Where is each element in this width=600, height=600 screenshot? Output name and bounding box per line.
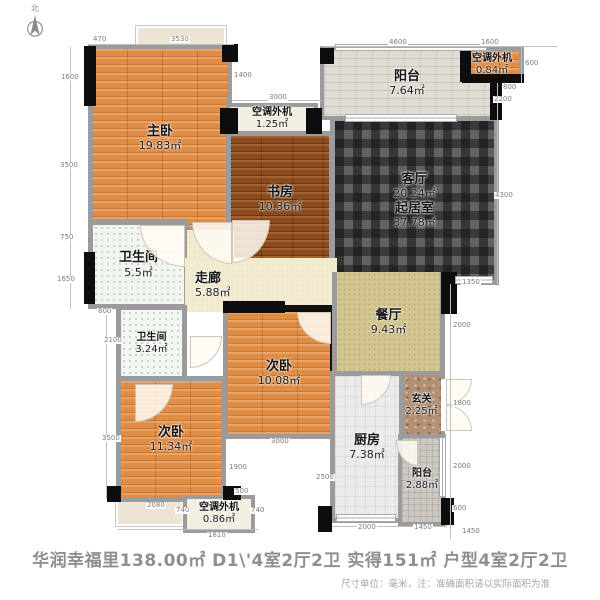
room-area: 19.83㎡ [139,139,182,152]
room-bathroom-2: 卫生间 3.24㎡ [116,305,187,382]
room-name: 主卧 [147,124,173,140]
dim-label: 3500 [101,435,121,442]
room-area: 2.25㎡ [405,406,437,418]
room-name: 空调外机 [472,53,512,65]
dim-label: 470 [92,36,107,43]
room-area: 3.24㎡ [135,344,167,356]
window-mark [439,437,446,497]
dim-label: 3000 [270,438,290,445]
compass: 北 [20,5,50,39]
dim-label: 3000 [268,94,288,101]
room-area: 20.24㎡ [393,187,436,200]
dim-label: 1810 [207,532,227,539]
room-master-bedroom: 主卧 19.83㎡ [88,44,232,232]
room-name: 阳台 [394,69,420,85]
dim-label: 2080 [146,502,166,509]
door-arc-bathroom-2 [190,336,222,368]
room-living-room: 客厅 20.24㎡ 起居室 37.78㎡ [330,116,499,285]
window-mark [336,514,396,522]
room-area: 7.64㎡ [389,84,425,97]
wall-column [462,74,524,83]
wall-column [223,301,285,313]
wall-column [84,46,96,106]
room-area: 0.86㎡ [203,514,235,526]
wall-column [107,486,121,502]
dim-line [521,47,522,83]
wall-column [222,44,238,62]
dim-label: 1600 [60,74,80,81]
room-area: 9.43㎡ [371,323,407,336]
dim-label: 1450 [461,528,481,535]
dim-label: 4300 [494,192,514,199]
dim-label: 1400 [233,72,253,79]
room-name: 空调外机 [199,502,239,514]
room-name: 书房 [267,185,293,201]
room-area: 5.88㎡ [195,286,231,299]
wall-column [306,108,322,134]
dim-label: 500 [234,488,249,495]
room-area: 2.88㎡ [406,480,438,492]
room-entry: 玄关 2.25㎡ [398,371,445,440]
dim-label: 1350 [461,279,481,286]
dim-label: 740 [250,507,265,514]
dim-label: 4600 [388,39,408,46]
room-name: 卫生间 [137,332,167,344]
dim-label: 1650 [56,276,76,283]
room-name-alt: 起居室 [395,201,434,217]
room-ac-unit-bottom: 空调外机 0.86㎡ [183,495,255,533]
room-name: 客厅 [401,172,427,188]
dim-label: 1900 [228,464,248,471]
plan-note: 尺寸单位：毫米，注：准确面积请以实际面积为准 [341,576,550,590]
room-name: 阳台 [412,468,432,480]
dim-line [497,83,498,284]
room-dining: 餐厅 9.43㎡ [332,272,445,377]
compass-needle-icon [24,13,46,39]
room-name: 玄关 [412,394,432,406]
dim-label: 600 [452,505,467,512]
room-name: 次卧 [158,425,184,441]
dim-label: 800 [97,308,112,315]
room-area: 5.5㎡ [124,266,153,279]
room-area: 10.36㎡ [259,200,302,213]
room-area: 7.38㎡ [349,448,385,461]
dim-label: 1600 [480,39,500,46]
dim-label: 1450 [413,524,433,531]
dim-label: 1800 [452,400,472,407]
window-mark [345,114,457,122]
room-name: 厨房 [354,433,380,449]
wall-column [84,252,95,304]
dim-label: 2000 [452,322,472,329]
floor-plan-canvas: 北 主卧 19.83㎡ 空调外机 1.25㎡ 书房 10.36㎡ 阳台 7.64… [0,0,600,600]
dim-label: 3530 [170,36,190,43]
dim-label: 2200 [493,96,513,103]
room-area: 1.25㎡ [256,119,288,131]
dim-label: 800 [502,84,517,91]
room-name: 走廊 [195,271,221,287]
dim-line [88,44,234,45]
room-name: 餐厅 [375,308,401,324]
dim-line [450,284,451,539]
dim-line [70,47,71,309]
dim-label: 2000 [357,524,377,531]
dim-label: 750 [59,234,74,241]
compass-north-label: 北 [31,5,39,13]
dim-line [118,529,258,530]
dim-label: 600 [524,60,539,67]
dim-label: 2500 [315,474,335,481]
room-area: 11.34㎡ [150,440,193,453]
wall-column [220,108,238,134]
room-name: 空调外机 [252,107,292,119]
dim-label: 3500 [59,162,79,169]
dim-label: 740 [175,507,190,514]
wall-column [318,506,332,532]
room-area: 10.08㎡ [258,374,301,387]
wall-column [320,48,334,64]
room-area-alt: 37.78㎡ [393,216,436,229]
dim-label: 2100 [103,337,123,344]
room-name: 次卧 [266,359,292,375]
dim-label: 2000 [452,463,472,470]
plan-title: 华润幸福里138.00㎡ D1\'4室2厅2卫 实得151㎡ 户型4室2厅2卫 [0,546,600,571]
